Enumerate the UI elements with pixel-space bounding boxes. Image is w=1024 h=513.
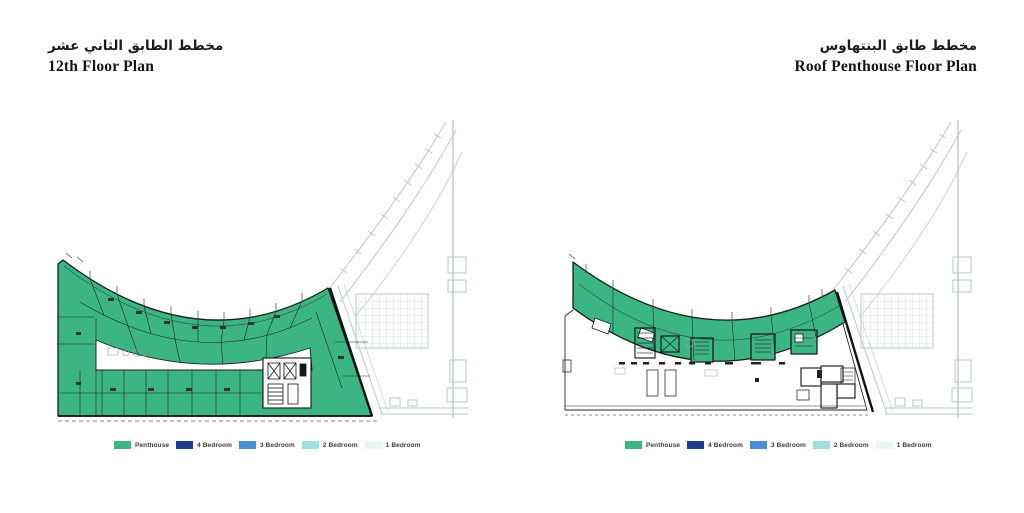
- legend-swatch-3bedroom: [750, 441, 767, 449]
- legend-label-4bedroom: 4 Bedroom: [197, 442, 232, 449]
- adjacent-wing-outline: [833, 120, 973, 418]
- legend-swatch-penthouse: [114, 441, 131, 449]
- legend-swatch-4bedroom: [176, 441, 193, 449]
- legend-swatch-1bedroom: [365, 441, 382, 449]
- legend-swatch-3bedroom: [239, 441, 256, 449]
- legend-swatch-penthouse: [625, 441, 642, 449]
- legend-item-penthouse: Penthouse: [625, 441, 680, 449]
- right-plan-title: مخطط طابق البنتهاوس Roof Penthouse Floor…: [794, 36, 977, 76]
- legend-item-3bedroom: 3 Bedroom: [750, 441, 806, 449]
- legend-label-4bedroom: 4 Bedroom: [708, 442, 743, 449]
- legend-item-2bedroom: 2 Bedroom: [302, 441, 358, 449]
- legend-swatch-2bedroom: [302, 441, 319, 449]
- floor-plan-penthouse: [555, 112, 975, 422]
- right-plan-title-english: Roof Penthouse Floor Plan: [794, 58, 977, 76]
- legend-item-2bedroom: 2 Bedroom: [813, 441, 869, 449]
- legend-item-3bedroom: 3 Bedroom: [239, 441, 295, 449]
- legend-label-3bedroom: 3 Bedroom: [771, 442, 806, 449]
- legend-swatch-1bedroom: [876, 441, 893, 449]
- legend-swatch-2bedroom: [813, 441, 830, 449]
- legend-item-penthouse: Penthouse: [114, 441, 169, 449]
- highlighted-floor-area: [573, 262, 845, 362]
- right-plan-title-arabic: مخطط طابق البنتهاوس: [794, 36, 977, 56]
- legend-item-1bedroom: 1 Bedroom: [876, 441, 932, 449]
- left-plan-title: مخطط الطابق الثاني عشر 12th Floor Plan: [48, 36, 223, 76]
- legend-label-2bedroom: 2 Bedroom: [323, 442, 358, 449]
- legend-label-penthouse: Penthouse: [135, 442, 169, 449]
- legend-item-1bedroom: 1 Bedroom: [365, 441, 421, 449]
- legend-label-penthouse: Penthouse: [646, 442, 680, 449]
- left-plan-title-english: 12th Floor Plan: [48, 58, 223, 76]
- legend-label-2bedroom: 2 Bedroom: [834, 442, 869, 449]
- left-plan-title-arabic: مخطط الطابق الثاني عشر: [48, 36, 223, 56]
- floor-plan-12th: [50, 112, 470, 422]
- brochure-page: مخطط الطابق الثاني عشر 12th Floor Plan م…: [0, 0, 1024, 513]
- left-legend: Penthouse 4 Bedroom 3 Bedroom 2 Bedroom …: [114, 441, 421, 449]
- legend-label-3bedroom: 3 Bedroom: [260, 442, 295, 449]
- legend-item-4bedroom: 4 Bedroom: [687, 441, 743, 449]
- legend-label-1bedroom: 1 Bedroom: [386, 442, 421, 449]
- legend-label-1bedroom: 1 Bedroom: [897, 442, 932, 449]
- legend-item-4bedroom: 4 Bedroom: [176, 441, 232, 449]
- legend-swatch-4bedroom: [687, 441, 704, 449]
- right-legend: Penthouse 4 Bedroom 3 Bedroom 2 Bedroom …: [625, 441, 932, 449]
